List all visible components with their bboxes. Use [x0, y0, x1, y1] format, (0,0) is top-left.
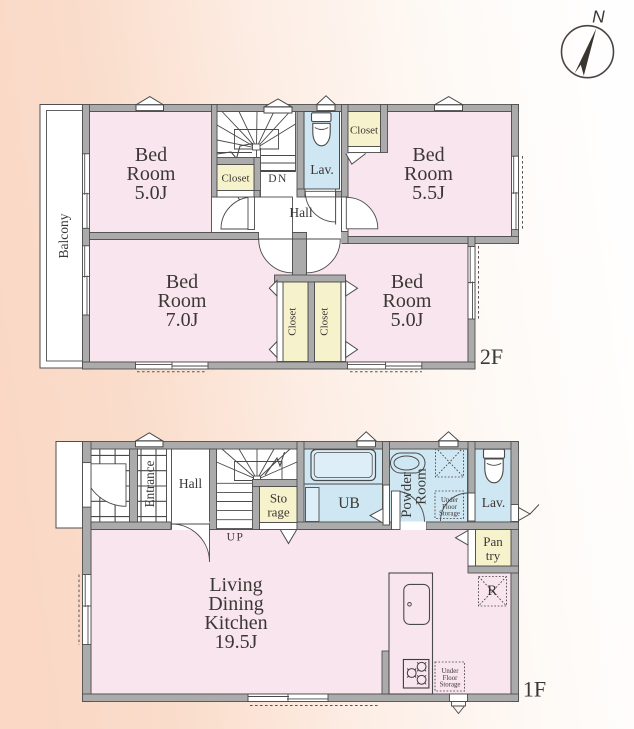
svg-text:Storage: Storage	[440, 682, 461, 689]
svg-text:Balcony: Balcony	[56, 213, 71, 258]
svg-text:Closet: Closet	[350, 125, 378, 137]
svg-text:N: N	[592, 6, 605, 26]
svg-text:Lav.: Lav.	[310, 162, 334, 177]
svg-text:Lav.: Lav.	[482, 495, 506, 510]
svg-text:DN: DN	[268, 173, 288, 185]
svg-text:Closet: Closet	[287, 308, 299, 336]
svg-text:1F: 1F	[523, 677, 546, 702]
svg-text:try: try	[486, 548, 501, 563]
svg-text:Hall: Hall	[289, 205, 312, 220]
svg-text:UP: UP	[227, 532, 245, 544]
svg-text:5.0J: 5.0J	[135, 182, 168, 204]
svg-text:7.0J: 7.0J	[166, 309, 199, 331]
svg-text:5.0J: 5.0J	[391, 309, 424, 331]
svg-text:19.5J: 19.5J	[215, 631, 258, 653]
svg-text:Hall: Hall	[179, 476, 202, 491]
svg-text:Sto: Sto	[270, 491, 287, 506]
svg-text:2F: 2F	[480, 344, 503, 369]
svg-text:Closet: Closet	[221, 173, 249, 185]
svg-text:Room: Room	[414, 468, 430, 505]
svg-text:5.5J: 5.5J	[412, 182, 445, 204]
svg-text:Pan: Pan	[483, 534, 503, 549]
svg-text:rage: rage	[267, 505, 290, 520]
svg-text:Closet: Closet	[319, 308, 331, 336]
svg-text:Entrance: Entrance	[142, 460, 157, 507]
svg-text:R: R	[487, 583, 497, 599]
svg-text:UB: UB	[338, 495, 360, 512]
